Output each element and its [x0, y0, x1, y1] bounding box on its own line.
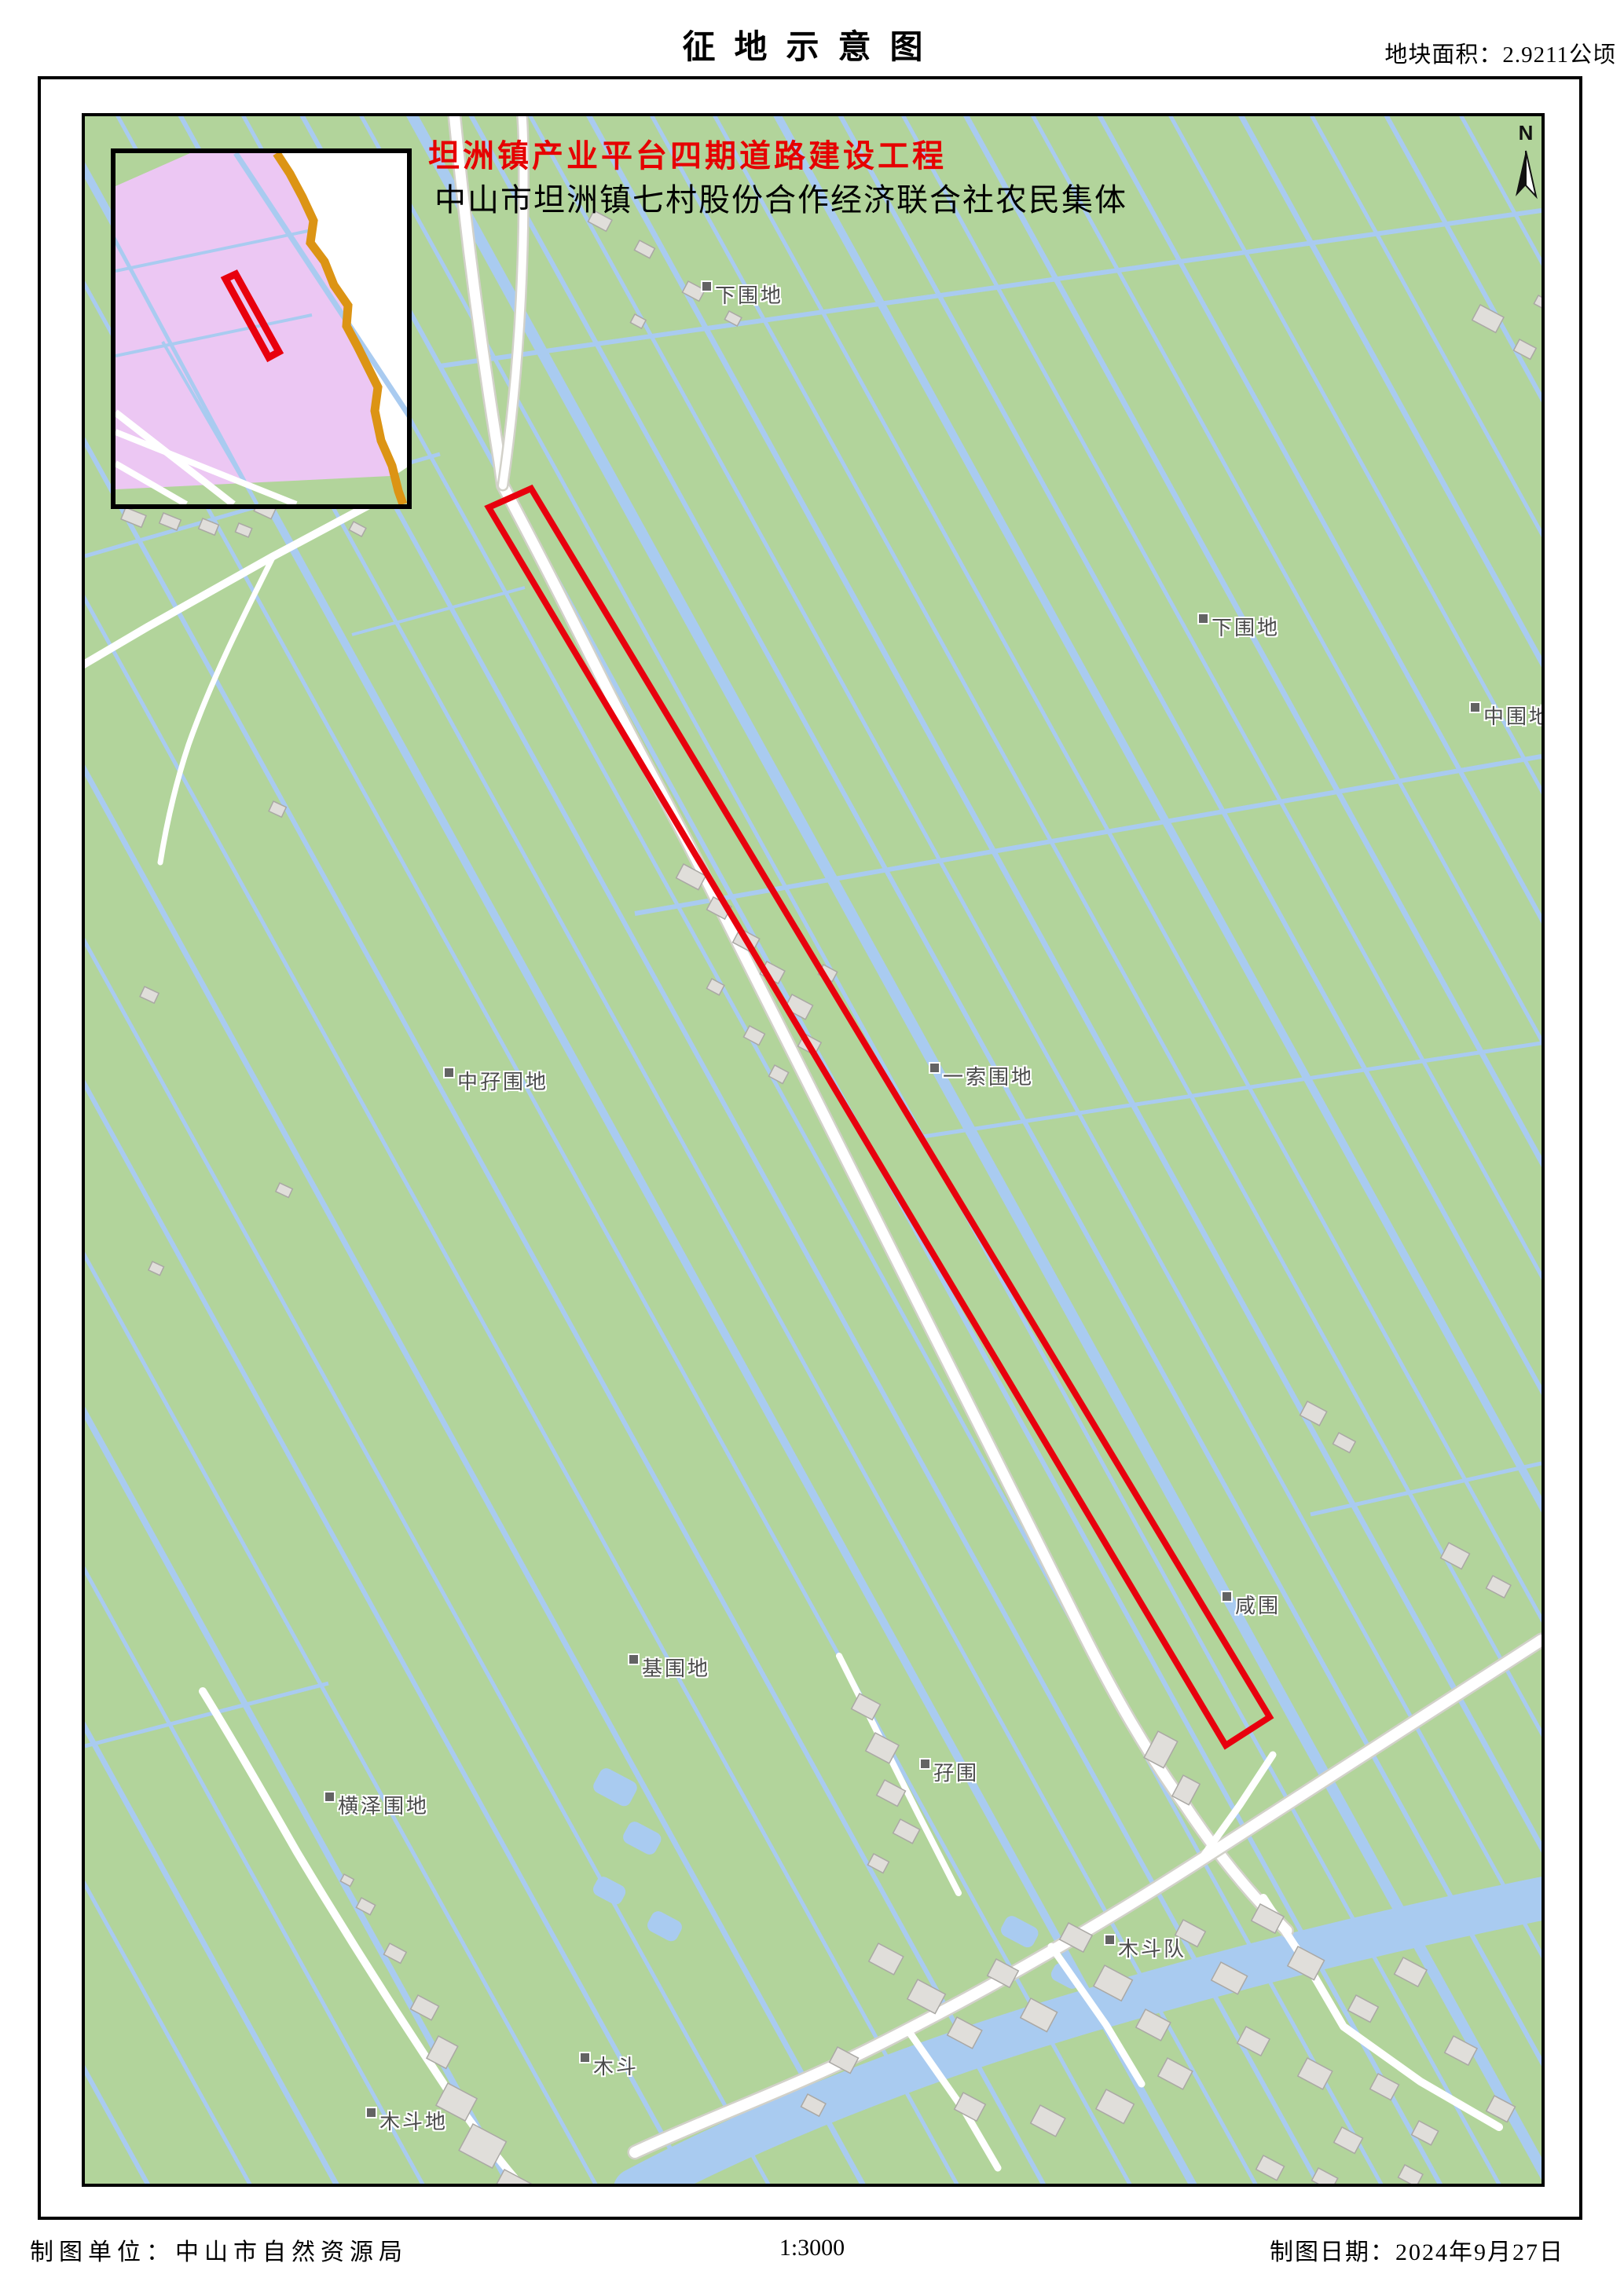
map-place-label: 孖围 [921, 1757, 979, 1786]
place-marker-icon [1471, 703, 1479, 712]
inset-overview-map [111, 148, 412, 509]
place-marker-icon [921, 1760, 929, 1768]
place-marker-icon [367, 2108, 376, 2117]
page-title: 征地示意图 [0, 20, 1624, 68]
place-marker-icon [1223, 1592, 1231, 1601]
place-marker-icon [930, 1064, 939, 1072]
map-place-label: 木斗地 [367, 2106, 448, 2135]
map-place-label: 木斗队 [1105, 1933, 1186, 1962]
project-owner-line: 中山市坦洲镇七村股份合作经济联合社农民集体 [434, 174, 1127, 220]
place-marker-icon [1199, 614, 1208, 623]
map-place-label: 基围地 [629, 1653, 710, 1682]
svg-text:N: N [1519, 121, 1534, 145]
map-place-label: 下围地 [1199, 612, 1280, 641]
map-place-label: 中孖围地 [445, 1066, 548, 1095]
place-marker-icon [1105, 1935, 1114, 1944]
map-date-label: 制图日期：2024年9月27日 [1270, 2232, 1564, 2267]
place-marker-icon [445, 1068, 453, 1077]
place-marker-icon [702, 282, 711, 291]
place-marker-icon [629, 1655, 638, 1664]
inset-map-svg [115, 153, 407, 504]
map-place-label: 横泽围地 [325, 1790, 429, 1819]
parcel-area-label: 地块面积：2.9211公顷 [1384, 36, 1616, 69]
map-place-label: 木斗 [581, 2051, 639, 2080]
map-canvas: N 坦洲镇产业平台四期道路建设工程 中山市坦洲镇七村股份合作经济联合社农民集体 … [82, 113, 1545, 2187]
map-place-label: 咸围 [1223, 1590, 1281, 1619]
map-place-label: 中围地 [1471, 701, 1545, 730]
map-place-label: 下围地 [702, 280, 783, 309]
place-marker-icon [581, 2053, 589, 2062]
land-acquisition-map-page: { "page": { "title": "征地示意图", "area_labe… [0, 0, 1624, 2296]
project-title: 坦洲镇产业平台四期道路建设工程 [428, 130, 947, 176]
place-marker-icon [325, 1792, 334, 1801]
map-place-label: 一索围地 [930, 1061, 1034, 1090]
